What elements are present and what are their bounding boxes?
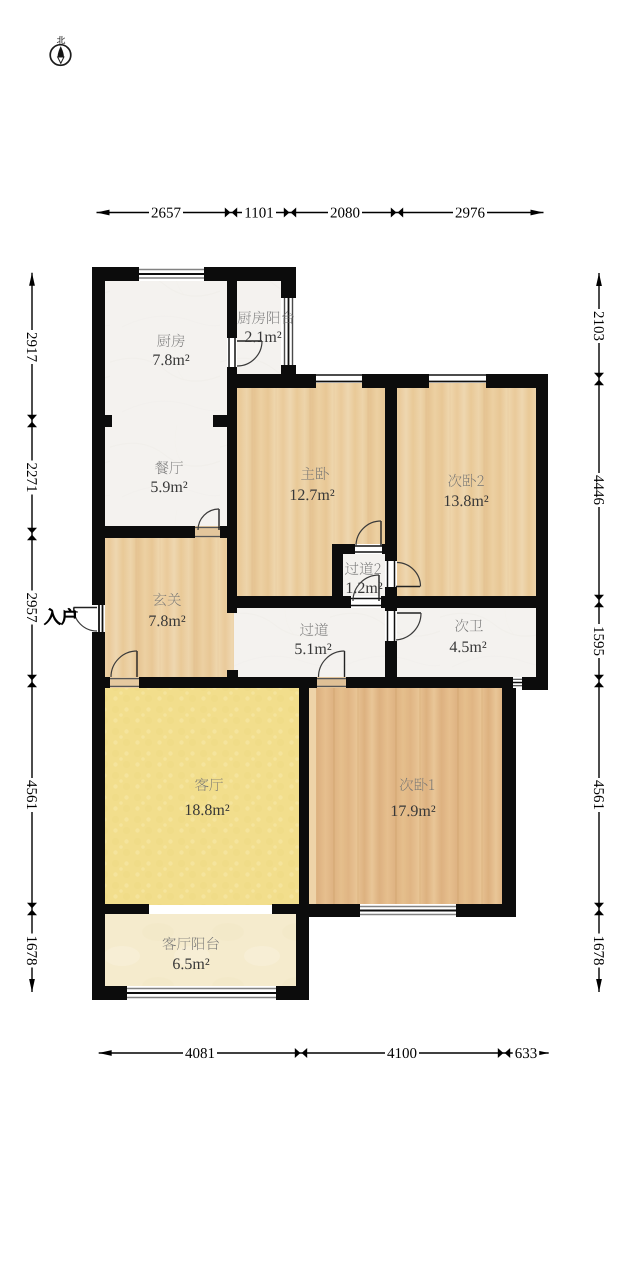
svg-text:2.1m²: 2.1m² bbox=[244, 329, 281, 346]
svg-text:2271: 2271 bbox=[23, 463, 39, 493]
svg-text:7.8m²: 7.8m² bbox=[152, 352, 189, 369]
svg-text:5.1m²: 5.1m² bbox=[294, 641, 331, 658]
svg-text:2917: 2917 bbox=[23, 332, 39, 363]
svg-text:2080: 2080 bbox=[330, 205, 360, 221]
svg-text:4561: 4561 bbox=[23, 780, 39, 810]
svg-text:1595: 1595 bbox=[590, 626, 606, 656]
svg-text:4100: 4100 bbox=[387, 1046, 417, 1062]
svg-text:12.7m²: 12.7m² bbox=[289, 487, 334, 504]
svg-text:2976: 2976 bbox=[455, 205, 486, 221]
svg-text:4.5m²: 4.5m² bbox=[449, 639, 486, 656]
svg-text:1.2m²: 1.2m² bbox=[345, 580, 382, 597]
svg-text:18.8m²: 18.8m² bbox=[184, 802, 229, 819]
svg-text:6.5m²: 6.5m² bbox=[172, 956, 209, 973]
svg-text:4446: 4446 bbox=[590, 475, 606, 506]
svg-text:13.8m²: 13.8m² bbox=[443, 493, 488, 510]
svg-text:4081: 4081 bbox=[185, 1046, 215, 1062]
svg-text:1678: 1678 bbox=[590, 936, 606, 966]
svg-text:1101: 1101 bbox=[244, 205, 273, 221]
svg-text:7.8m²: 7.8m² bbox=[148, 613, 185, 630]
svg-text:17.9m²: 17.9m² bbox=[390, 803, 435, 820]
svg-text:2657: 2657 bbox=[151, 205, 182, 221]
svg-text:5.9m²: 5.9m² bbox=[150, 479, 187, 496]
svg-text:2103: 2103 bbox=[590, 311, 606, 341]
svg-text:1678: 1678 bbox=[23, 936, 39, 966]
svg-text:633: 633 bbox=[515, 1046, 538, 1062]
svg-text:2957: 2957 bbox=[23, 593, 39, 624]
svg-text:4561: 4561 bbox=[590, 780, 606, 810]
